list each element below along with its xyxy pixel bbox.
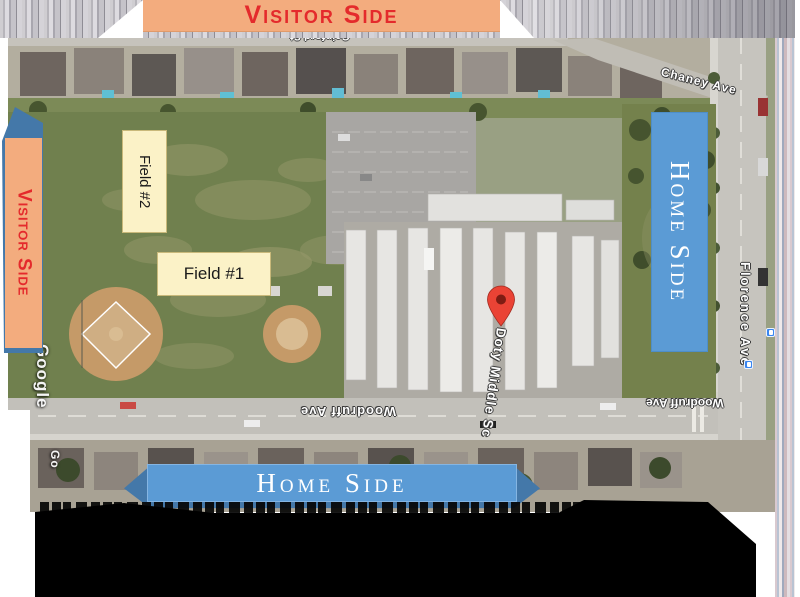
visitor-side-banner-top-label: Visitor Side bbox=[245, 1, 399, 30]
home-banner-rect: Home Side bbox=[147, 464, 517, 502]
google-watermark-partial: Go bbox=[48, 450, 62, 469]
transit-stop-icon[interactable] bbox=[766, 328, 775, 337]
stretched-pixels-top-dark bbox=[530, 0, 800, 38]
field-2-label-text: Field #2 bbox=[136, 155, 153, 208]
visitor-side-banner-left-label: Visitor Side bbox=[13, 189, 35, 296]
visitor-side-banner-top[interactable]: Visitor Side bbox=[143, 0, 500, 32]
background-corner bbox=[0, 410, 30, 597]
field-1-label[interactable]: Field #1 bbox=[157, 252, 271, 296]
street-label-woodruff-right: Woodruff Ave bbox=[646, 396, 724, 410]
baseball-diamond-1 bbox=[69, 287, 163, 381]
field-1-label-text: Field #1 bbox=[184, 264, 244, 284]
street-label-woodruff-center: Woodruff Ave bbox=[300, 404, 396, 419]
background-edge bbox=[795, 0, 800, 597]
street-label-florence: Florence Ave bbox=[738, 262, 753, 367]
home-side-banner-right-label: Home Side bbox=[664, 161, 695, 303]
visitor-side-banner-left[interactable]: Visitor Side bbox=[5, 138, 42, 348]
field-2-label[interactable]: Field #2 bbox=[122, 130, 167, 233]
baseball-diamond-2 bbox=[263, 305, 321, 363]
transit-stop-icon[interactable] bbox=[744, 360, 753, 369]
stretched-pixels-right bbox=[775, 38, 795, 597]
slide: Chaney Ave Florence Ave Woodruff Ave Woo… bbox=[0, 0, 800, 597]
home-side-banner-right[interactable]: Home Side bbox=[651, 112, 708, 352]
home-side-banner-bottom-label: Home Side bbox=[256, 468, 407, 499]
map-pin-icon[interactable] bbox=[486, 285, 516, 327]
street-label-top-partial: Gainford St bbox=[290, 38, 350, 42]
